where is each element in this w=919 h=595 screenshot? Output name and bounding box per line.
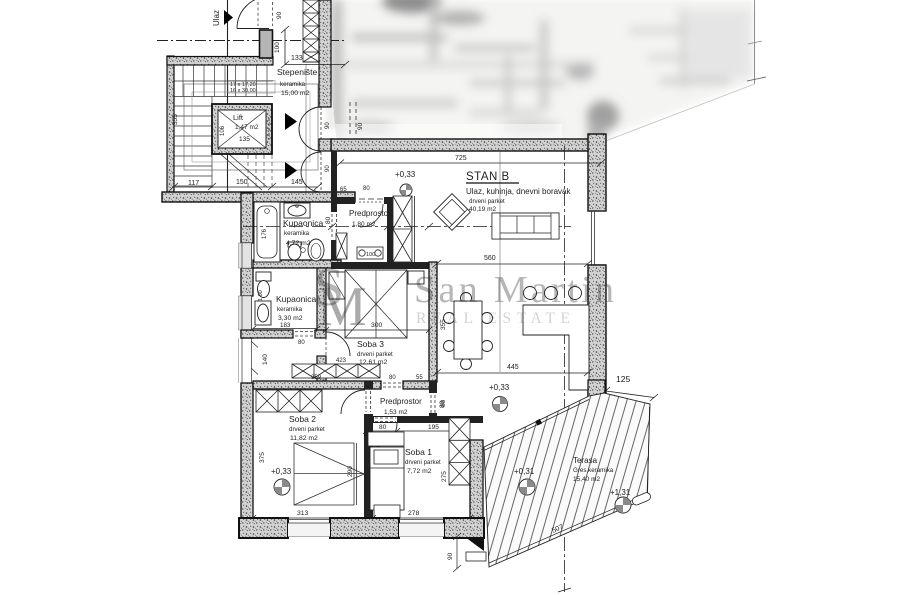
svg-text:278: 278 bbox=[408, 510, 420, 517]
svg-text:195: 195 bbox=[428, 424, 439, 431]
svg-text:Soba 2: Soba 2 bbox=[289, 414, 316, 424]
svg-text:300: 300 bbox=[371, 322, 383, 329]
svg-text:1,80 m2: 1,80 m2 bbox=[352, 221, 376, 228]
svg-text:1,53 m2: 1,53 m2 bbox=[384, 409, 408, 416]
svg-text:Predprostor: Predprostor bbox=[349, 209, 391, 218]
svg-text:313: 313 bbox=[297, 510, 309, 517]
svg-text:125: 125 bbox=[616, 374, 630, 384]
svg-text:55: 55 bbox=[416, 375, 423, 381]
svg-text:3,30 m2: 3,30 m2 bbox=[278, 315, 303, 322]
svg-text:725: 725 bbox=[455, 155, 467, 162]
svg-text:4,72 m2: 4,72 m2 bbox=[286, 240, 311, 247]
svg-text:7,72 m2: 7,72 m2 bbox=[407, 468, 432, 475]
svg-text:150: 150 bbox=[236, 179, 248, 186]
svg-text:445: 445 bbox=[507, 364, 519, 371]
svg-text:drveni parket: drveni parket bbox=[405, 459, 441, 466]
svg-text:keramika: keramika bbox=[277, 306, 303, 313]
svg-text:15,00 m2: 15,00 m2 bbox=[281, 90, 310, 97]
svg-text:keramika: keramika bbox=[284, 230, 310, 237]
svg-text:140: 140 bbox=[262, 354, 269, 365]
svg-text:183: 183 bbox=[280, 322, 291, 329]
svg-text:Soba 1: Soba 1 bbox=[405, 447, 432, 457]
svg-text:90: 90 bbox=[325, 122, 331, 129]
svg-text:80: 80 bbox=[363, 186, 370, 192]
svg-text:Gres keramika: Gres keramika bbox=[573, 467, 614, 474]
svg-text:135: 135 bbox=[239, 136, 250, 143]
svg-text:90: 90 bbox=[447, 552, 454, 560]
svg-text:Ulaz: Ulaz bbox=[212, 10, 221, 26]
svg-text:100: 100 bbox=[366, 252, 375, 258]
svg-text:15,40 m2: 15,40 m2 bbox=[573, 476, 600, 483]
svg-text:117: 117 bbox=[188, 180, 199, 187]
svg-text:drveni parket: drveni parket bbox=[289, 426, 325, 433]
svg-text:drveni parket: drveni parket bbox=[357, 351, 393, 358]
svg-text:176: 176 bbox=[262, 228, 268, 239]
svg-text:Kupaonica: Kupaonica bbox=[276, 294, 316, 304]
svg-text:275: 275 bbox=[441, 471, 448, 482]
svg-text:Ulaz, kuhinja, dnevni boravak: Ulaz, kuhinja, dnevni boravak bbox=[466, 187, 572, 196]
svg-text:Soba 3: Soba 3 bbox=[357, 339, 384, 349]
svg-text:90: 90 bbox=[325, 165, 331, 172]
svg-text:Lift: Lift bbox=[233, 113, 244, 122]
svg-text:1,47 m2: 1,47 m2 bbox=[235, 124, 259, 131]
svg-text:11,82 m2: 11,82 m2 bbox=[290, 435, 318, 442]
svg-text:Predprostor: Predprostor bbox=[380, 397, 422, 406]
svg-text:+0,33: +0,33 bbox=[271, 467, 292, 476]
svg-text:Terasa: Terasa bbox=[573, 456, 598, 465]
svg-text:San Martin: San Martin bbox=[414, 269, 614, 311]
svg-text:+0,33: +0,33 bbox=[489, 383, 510, 392]
svg-text:423: 423 bbox=[336, 358, 347, 364]
svg-text:106: 106 bbox=[220, 125, 226, 136]
svg-text:80: 80 bbox=[440, 399, 447, 407]
svg-text:40,19 m2: 40,19 m2 bbox=[469, 206, 496, 213]
svg-text:+0,31: +0,31 bbox=[514, 467, 535, 476]
svg-text:Stepenište: Stepenište bbox=[277, 67, 317, 77]
svg-text:560: 560 bbox=[484, 255, 496, 262]
svg-text:drveni parket: drveni parket bbox=[469, 198, 505, 205]
svg-text:+0,33: +0,33 bbox=[395, 170, 416, 179]
svg-text:65: 65 bbox=[340, 187, 347, 193]
svg-text:290: 290 bbox=[347, 466, 354, 477]
svg-text:80: 80 bbox=[389, 375, 396, 381]
svg-text:90: 90 bbox=[276, 11, 283, 19]
svg-text:80: 80 bbox=[325, 216, 332, 224]
svg-text:keramika: keramika bbox=[280, 81, 306, 88]
svg-text:359: 359 bbox=[311, 375, 322, 381]
svg-text:STAN B: STAN B bbox=[466, 171, 510, 183]
svg-text:1,00: 1,00 bbox=[258, 290, 264, 301]
svg-text:145: 145 bbox=[291, 179, 303, 186]
svg-text:+1,31: +1,31 bbox=[610, 488, 631, 497]
svg-text:100: 100 bbox=[274, 42, 281, 53]
svg-text:133: 133 bbox=[291, 55, 303, 62]
svg-text:80: 80 bbox=[379, 424, 387, 431]
svg-text:375: 375 bbox=[259, 452, 266, 463]
svg-text:90: 90 bbox=[357, 122, 364, 130]
svg-text:355: 355 bbox=[172, 114, 179, 125]
svg-text:M: M bbox=[317, 276, 367, 338]
svg-text:80: 80 bbox=[298, 340, 305, 346]
svg-text:REAL ESTATE: REAL ESTATE bbox=[416, 310, 576, 327]
